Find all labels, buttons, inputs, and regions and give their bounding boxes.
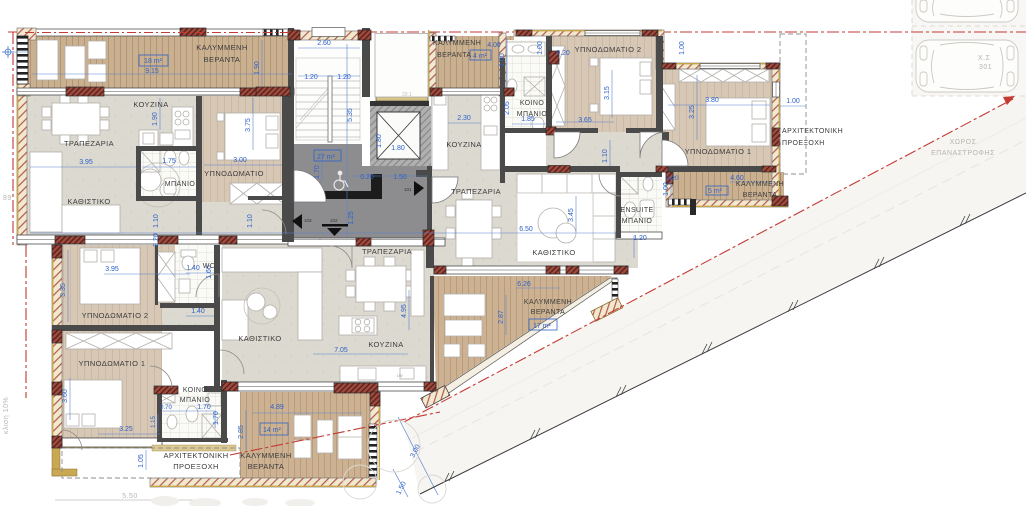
svg-text:1.90: 1.90 bbox=[152, 112, 159, 126]
svg-text:1.00: 1.00 bbox=[663, 182, 670, 196]
svg-text:1.50: 1.50 bbox=[393, 174, 407, 181]
svg-text:3.15: 3.15 bbox=[604, 86, 611, 100]
svg-text:ΤΡΑΠΕΖΑΡΙΑ: ΤΡΑΠΕΖΑΡΙΑ bbox=[451, 187, 501, 196]
svg-text:1.70: 1.70 bbox=[213, 411, 220, 425]
svg-text:ΒΕΡΑΝΤΑ: ΒΕΡΑΝΤΑ bbox=[531, 309, 565, 316]
svg-text:ΚΑΛΥΜΜΕΝΗ: ΚΑΛΥΜΜΕΝΗ bbox=[240, 451, 291, 460]
svg-text:ΜΠΑΝΙΟ: ΜΠΑΝΙΟ bbox=[165, 181, 196, 188]
svg-text:27 m²: 27 m² bbox=[317, 154, 336, 161]
svg-text:0.20: 0.20 bbox=[360, 174, 374, 181]
svg-text:ΤΡΑΠΕΖΑΡΙΑ: ΤΡΑΠΕΖΑΡΙΑ bbox=[362, 247, 412, 256]
svg-text:3.95: 3.95 bbox=[79, 159, 93, 166]
svg-text:2.30: 2.30 bbox=[457, 115, 471, 122]
svg-text:1.75: 1.75 bbox=[162, 158, 176, 165]
svg-text:3.75: 3.75 bbox=[245, 118, 252, 132]
svg-text:4.89: 4.89 bbox=[270, 404, 284, 411]
svg-text:1.80: 1.80 bbox=[391, 145, 405, 152]
svg-text:1.70: 1.70 bbox=[314, 165, 321, 179]
svg-text:103: 103 bbox=[304, 218, 312, 223]
svg-text:3.80: 3.80 bbox=[705, 97, 719, 104]
svg-text:κλιση 10%: κλιση 10% bbox=[3, 397, 10, 434]
svg-text:3.35: 3.35 bbox=[60, 283, 67, 297]
svg-text:ΚΑΛΥΜΜΕΝΗ: ΚΑΛΥΜΜΕΝΗ bbox=[433, 40, 481, 47]
svg-text:89: 89 bbox=[3, 195, 12, 202]
svg-text:3.45: 3.45 bbox=[568, 208, 575, 222]
svg-text:1.20: 1.20 bbox=[633, 235, 647, 242]
svg-text:4 m²: 4 m² bbox=[473, 53, 488, 60]
svg-text:WC: WC bbox=[203, 263, 215, 270]
svg-text:1.10: 1.10 bbox=[602, 149, 609, 163]
svg-text:1.20: 1.20 bbox=[337, 74, 351, 81]
svg-text:ΠΡΟΕΞΟΧΗ: ΠΡΟΕΞΟΧΗ bbox=[173, 462, 219, 471]
svg-text:1.40: 1.40 bbox=[191, 308, 205, 315]
svg-text:1.00: 1.00 bbox=[786, 98, 800, 105]
svg-text:1.10: 1.10 bbox=[153, 214, 160, 228]
svg-text:5.50: 5.50 bbox=[122, 493, 138, 500]
svg-text:ΚΑΘΙΣΤΙΚΟ: ΚΑΘΙΣΤΙΚΟ bbox=[67, 197, 110, 206]
svg-text:ΥΠΝΟΔΩΜΑΤΙΟ 2: ΥΠΝΟΔΩΜΑΤΙΟ 2 bbox=[575, 45, 642, 54]
svg-text:ΚΑΘΙΣΤΙΚΟ: ΚΑΘΙΣΤΙΚΟ bbox=[238, 334, 281, 343]
svg-text:ΚΑΛΥΜΜΕΝΗ: ΚΑΛΥΜΜΕΝΗ bbox=[736, 181, 784, 188]
svg-text:ΚΟΙΝΟ: ΚΟΙΝΟ bbox=[183, 387, 207, 394]
svg-text:2.05: 2.05 bbox=[504, 101, 511, 115]
svg-text:ΚΑΘΙΣΤΙΚΟ: ΚΑΘΙΣΤΙΚΟ bbox=[532, 248, 575, 257]
svg-text:5.35: 5.35 bbox=[347, 108, 354, 122]
svg-text:2.60: 2.60 bbox=[317, 40, 331, 47]
svg-text:ΑΡΧΙΤΕΚΤΟΝΙΚΗ: ΑΡΧΙΤΕΚΤΟΝΙΚΗ bbox=[163, 451, 228, 460]
svg-text:ΥΠΝΟΔΩΜΑΤΙΟ 1: ΥΠΝΟΔΩΜΑΤΙΟ 1 bbox=[685, 147, 752, 156]
svg-text:ΜΠΑΝΙΟ: ΜΠΑΝΙΟ bbox=[180, 397, 211, 404]
svg-text:6.50: 6.50 bbox=[519, 226, 533, 233]
svg-text:1.90: 1.90 bbox=[254, 61, 261, 75]
svg-text:ΕΠΑΝΑΣΤΡΟΦΗΣ: ΕΠΑΝΑΣΤΡΟΦΗΣ bbox=[931, 150, 995, 157]
svg-text:1.20: 1.20 bbox=[304, 74, 318, 81]
svg-text:ΥΠΝΟΔΩΜΑΤΙΟ: ΥΠΝΟΔΩΜΑΤΙΟ bbox=[204, 169, 264, 178]
svg-text:3.25: 3.25 bbox=[119, 426, 133, 433]
svg-text:ΚΟΙΝΟ: ΚΟΙΝΟ bbox=[520, 100, 544, 107]
svg-text:301: 301 bbox=[979, 64, 992, 71]
svg-text:2.20: 2.20 bbox=[153, 233, 160, 247]
svg-text:1.00: 1.00 bbox=[499, 53, 506, 67]
svg-text:1.05: 1.05 bbox=[138, 454, 145, 468]
svg-text:101: 101 bbox=[404, 187, 412, 192]
svg-text:ΒΕΡΑΝΤΑ: ΒΕΡΑΝΤΑ bbox=[743, 192, 777, 199]
svg-text:ΚΑΛΥΜΜΕΝΗ: ΚΑΛΥΜΜΕΝΗ bbox=[196, 43, 247, 52]
svg-text:3.25: 3.25 bbox=[689, 105, 696, 119]
svg-text:4.95: 4.95 bbox=[401, 304, 408, 318]
svg-text:102: 102 bbox=[330, 218, 338, 223]
svg-text:ΧΩΡΟΣ: ΧΩΡΟΣ bbox=[950, 139, 977, 146]
svg-text:ΒΕΡΑΝΤΑ: ΒΕΡΑΝΤΑ bbox=[437, 52, 471, 59]
svg-text:1.00: 1.00 bbox=[679, 41, 686, 55]
svg-text:3.00: 3.00 bbox=[233, 157, 247, 164]
svg-text:6.26: 6.26 bbox=[517, 281, 531, 288]
svg-text:1.40: 1.40 bbox=[186, 265, 200, 272]
svg-text:9.15: 9.15 bbox=[145, 68, 159, 75]
svg-text:5 m²: 5 m² bbox=[708, 188, 723, 195]
svg-text:3.95: 3.95 bbox=[105, 266, 119, 273]
svg-text:ΚΑΛΥΜΜΕΝΗ: ΚΑΛΥΜΜΕΝΗ bbox=[524, 299, 572, 306]
svg-text:ENSUITE: ENSUITE bbox=[620, 207, 653, 214]
svg-text:1.10: 1.10 bbox=[247, 214, 254, 228]
svg-text:ΤΡΑΠΕΖΑΡΙΑ: ΤΡΑΠΕΖΑΡΙΑ bbox=[64, 139, 114, 148]
svg-text:ΠΡΟΕΞΟΧΗ: ΠΡΟΕΞΟΧΗ bbox=[782, 140, 825, 147]
svg-text:2.87: 2.87 bbox=[498, 310, 505, 324]
svg-text:ΒΕΡΑΝΤΑ: ΒΕΡΑΝΤΑ bbox=[204, 55, 241, 64]
svg-text:ΜΠΑΝΙΟ: ΜΠΑΝΙΟ bbox=[622, 218, 653, 225]
svg-text:1.80: 1.80 bbox=[376, 134, 383, 148]
svg-text:ΚΟΥΖΙΝΑ: ΚΟΥΖΙΝΑ bbox=[133, 100, 168, 109]
svg-text:ΥΠΝΟΔΩΜΑΤΙΟ 1: ΥΠΝΟΔΩΜΑΤΙΟ 1 bbox=[79, 359, 146, 368]
svg-text:14 m²: 14 m² bbox=[263, 427, 282, 434]
svg-text:2.85: 2.85 bbox=[238, 425, 245, 439]
svg-text:4.00: 4.00 bbox=[487, 42, 501, 49]
svg-text:0.20: 0.20 bbox=[666, 175, 679, 182]
svg-text:ΚΟΥΖΙΝΑ: ΚΟΥΖΙΝΑ bbox=[446, 140, 481, 149]
svg-text:7.05: 7.05 bbox=[334, 347, 348, 354]
svg-text:3.65: 3.65 bbox=[578, 117, 592, 124]
svg-text:ΜΠΑΝΙΟ: ΜΠΑΝΙΟ bbox=[517, 111, 548, 118]
svg-text:3.60: 3.60 bbox=[62, 389, 69, 403]
svg-text:1.25: 1.25 bbox=[348, 211, 355, 225]
svg-text:1.00: 1.00 bbox=[537, 41, 544, 55]
svg-text:ΒΕΡΑΝΤΑ: ΒΕΡΑΝΤΑ bbox=[248, 462, 285, 471]
svg-text:1.15: 1.15 bbox=[151, 416, 157, 428]
svg-text:ΥΠΝΟΔΩΜΑΤΙΟ 2: ΥΠΝΟΔΩΜΑΤΙΟ 2 bbox=[82, 311, 149, 320]
svg-text:17 m²: 17 m² bbox=[533, 323, 552, 330]
svg-text:ΑΡΧΙΤΕΚΤΟΝΙΚΗ: ΑΡΧΙΤΕΚΤΟΝΙΚΗ bbox=[782, 128, 843, 135]
svg-text:Χ.Σ: Χ.Σ bbox=[978, 55, 991, 62]
svg-text:0.70: 0.70 bbox=[160, 405, 172, 411]
svg-text:1.70: 1.70 bbox=[197, 404, 211, 411]
svg-text:LW: LW bbox=[397, 373, 403, 378]
svg-text:18 m²: 18 m² bbox=[144, 58, 163, 65]
svg-text:ΚΟΥΖΙΝΑ: ΚΟΥΖΙΝΑ bbox=[368, 340, 403, 349]
svg-text:20.1: 20.1 bbox=[402, 92, 412, 98]
svg-text:0.20: 0.20 bbox=[556, 50, 570, 57]
